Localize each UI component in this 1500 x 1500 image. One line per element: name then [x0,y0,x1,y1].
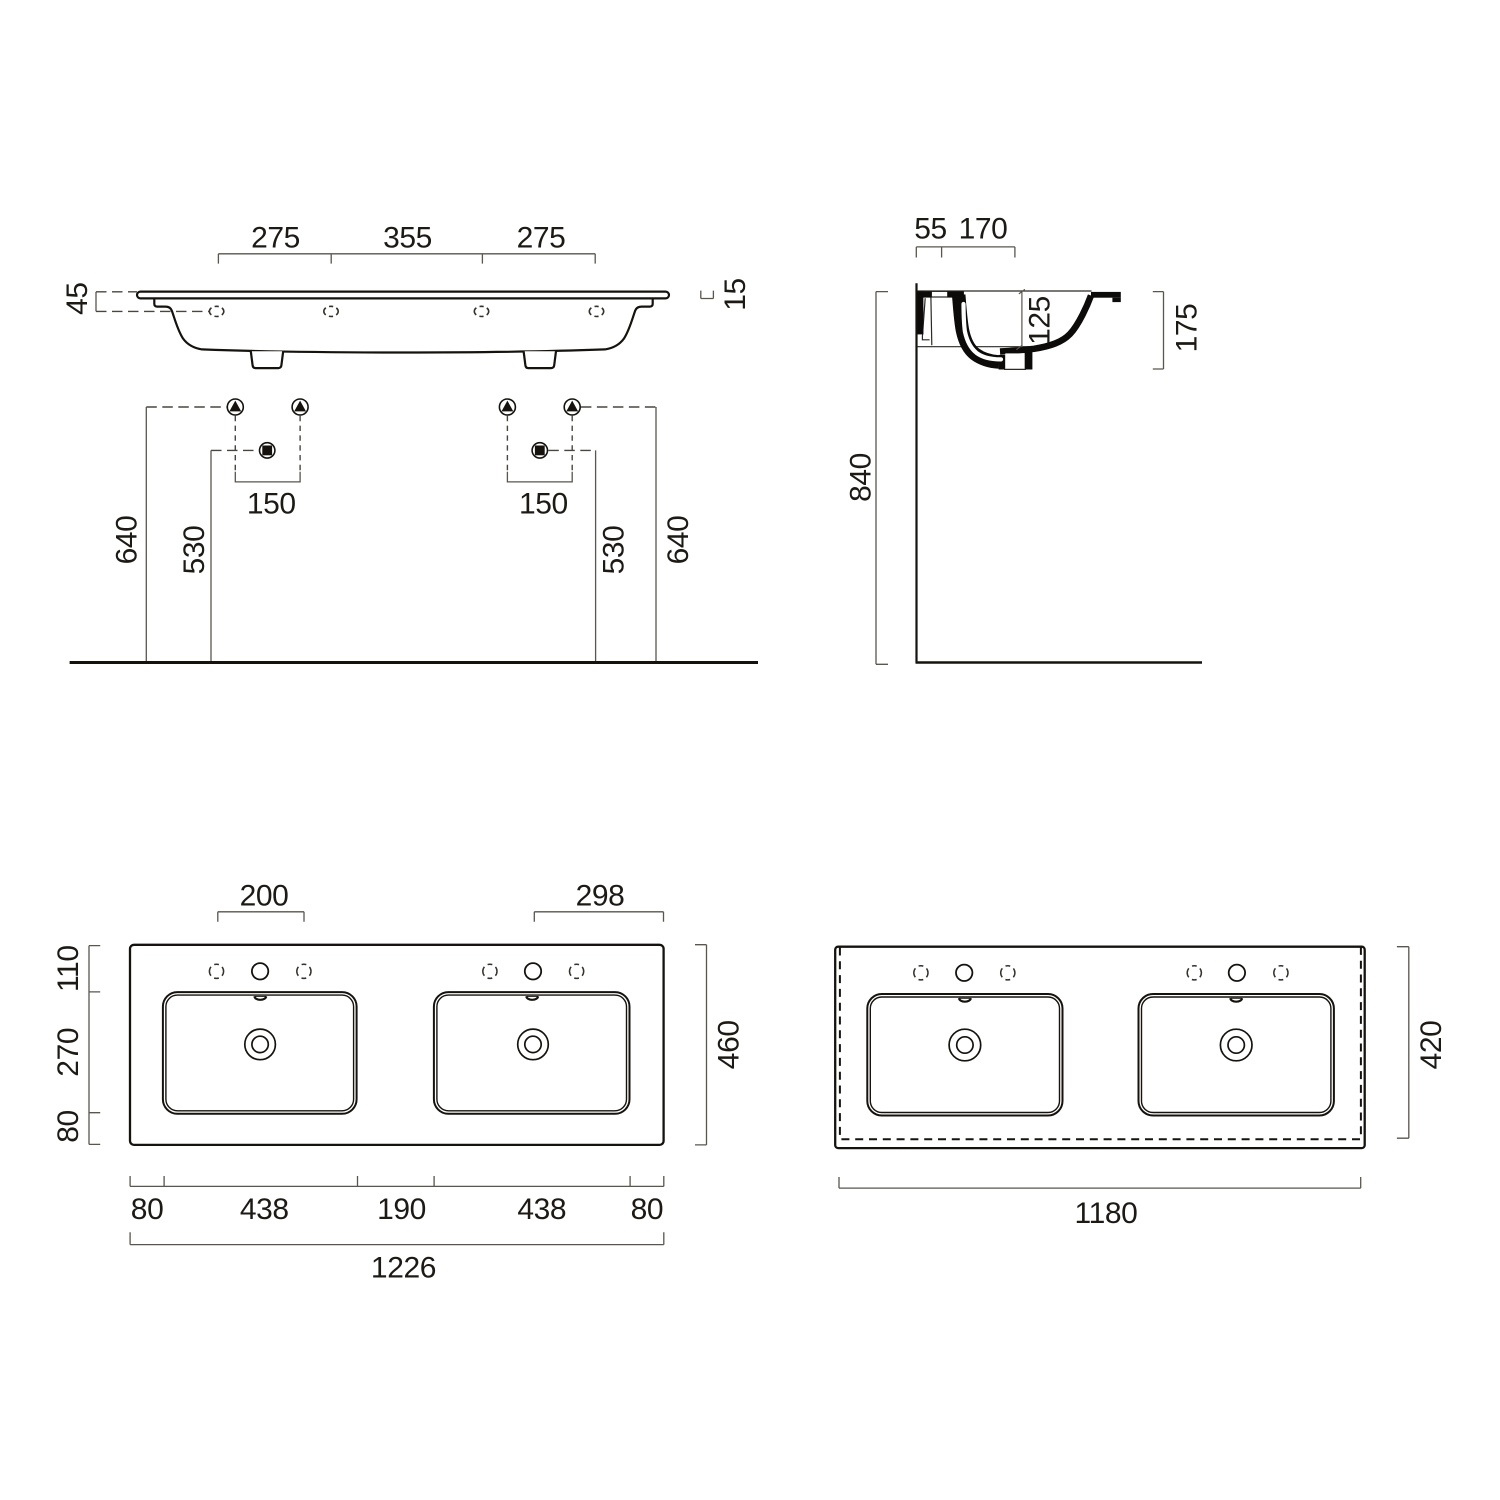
svg-text:438: 438 [240,1193,289,1226]
svg-text:80: 80 [631,1193,664,1226]
svg-text:150: 150 [519,488,568,521]
svg-text:530: 530 [178,526,211,575]
svg-text:45: 45 [61,282,94,315]
svg-text:80: 80 [131,1193,164,1226]
svg-text:640: 640 [662,516,695,565]
svg-text:110: 110 [52,945,85,992]
svg-text:270: 270 [52,1028,85,1077]
svg-text:15: 15 [719,278,752,311]
svg-text:55: 55 [914,213,947,246]
svg-text:275: 275 [251,222,300,255]
svg-text:275: 275 [517,222,566,255]
svg-text:438: 438 [517,1193,566,1226]
svg-text:190: 190 [377,1193,426,1226]
svg-text:175: 175 [1171,304,1204,353]
svg-text:125: 125 [1023,296,1056,345]
svg-text:420: 420 [1415,1021,1448,1070]
svg-text:640: 640 [110,516,143,565]
svg-text:1180: 1180 [1075,1197,1138,1230]
svg-text:840: 840 [845,453,878,502]
svg-text:170: 170 [959,213,1008,246]
svg-text:298: 298 [576,879,625,912]
svg-text:530: 530 [598,526,631,575]
svg-text:200: 200 [240,879,289,912]
svg-text:1226: 1226 [371,1251,436,1284]
svg-text:150: 150 [247,488,296,521]
svg-text:460: 460 [713,1020,746,1069]
svg-text:355: 355 [383,222,432,255]
svg-text:80: 80 [52,1110,85,1143]
